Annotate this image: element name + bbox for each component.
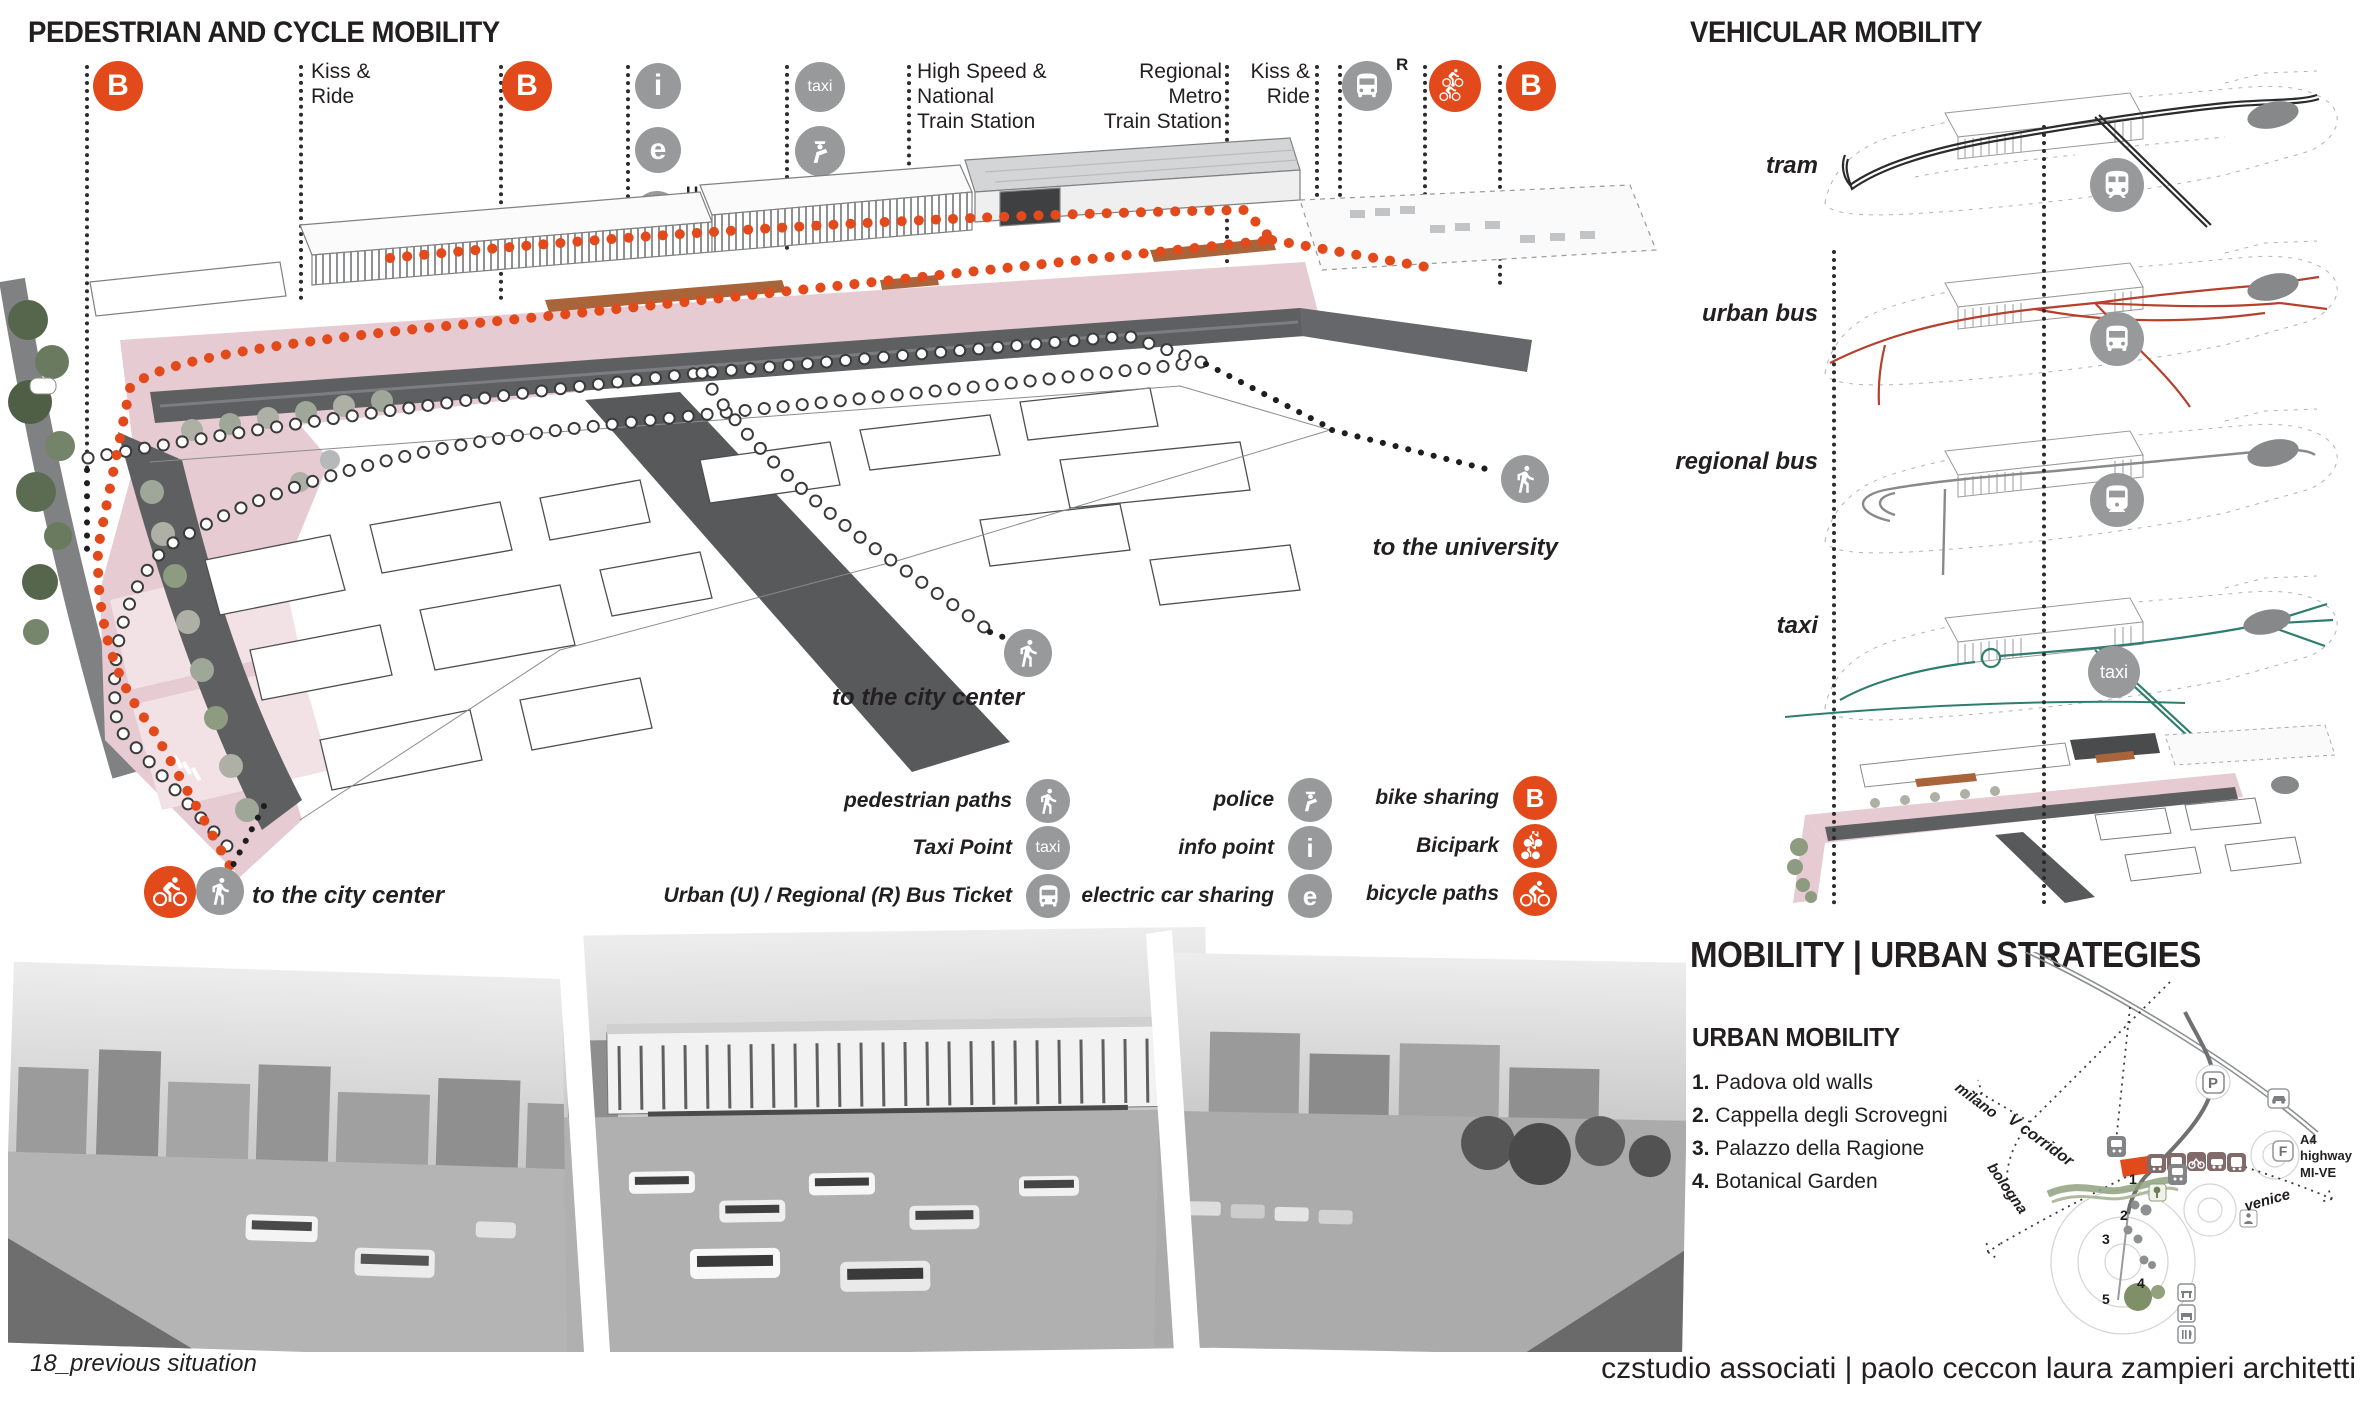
bicycle-icon bbox=[153, 875, 187, 909]
tram-icon bbox=[2090, 158, 2144, 212]
bike-sharing-station-icon: B bbox=[93, 61, 143, 111]
bike-sharing-station-icon: B bbox=[502, 61, 552, 111]
bicipark-icon bbox=[1513, 824, 1557, 868]
to-city-center-label: to the city center bbox=[252, 882, 444, 910]
urban-strategies-diagram: P F 1 2 3 4 5 bbox=[1930, 952, 2362, 1352]
bicipark-icon bbox=[1429, 60, 1481, 112]
train-icon bbox=[2168, 1164, 2187, 1185]
bicycle-icon bbox=[1513, 872, 1557, 916]
legend-row: electric car sharing e bbox=[1100, 874, 1332, 918]
page-title: PEDESTRIAN AND CYCLE MOBILITY bbox=[28, 16, 500, 50]
electric-icon: e bbox=[1288, 874, 1332, 918]
walk-icon bbox=[1013, 638, 1043, 668]
bus-icon bbox=[1352, 71, 1382, 101]
walk-icon bbox=[205, 876, 235, 906]
credit-line: czstudio associati | paolo ceccon laura … bbox=[1601, 1352, 2356, 1386]
svg-text:F: F bbox=[2279, 1143, 2288, 1159]
diagram-point: 2 bbox=[2120, 1207, 2128, 1223]
list-item: 3. Palazzo della Ragione bbox=[1692, 1132, 1948, 1165]
diagram-point: 5 bbox=[2102, 1291, 2110, 1307]
taxi-icon: taxi bbox=[1026, 826, 1070, 870]
previous-situation-photo bbox=[8, 916, 1686, 1352]
bus-icon bbox=[2090, 312, 2144, 366]
transport-icon-row bbox=[2147, 1152, 2246, 1173]
diagram-point: 4 bbox=[2137, 1275, 2145, 1291]
train-icon bbox=[2107, 1136, 2126, 1157]
list-item: 4. Botanical Garden bbox=[1692, 1165, 1948, 1198]
list-item: 1. Padova old walls bbox=[1692, 1066, 1948, 1099]
list-item: 2. Cappella degli Scrovegni bbox=[1692, 1099, 1948, 1132]
info-point-icon: i bbox=[635, 63, 681, 109]
bikeshare-icon: B bbox=[1513, 776, 1557, 820]
to-city-center-label: to the city center bbox=[832, 684, 1024, 712]
railway-icon bbox=[2090, 473, 2144, 527]
station-buildings bbox=[90, 138, 1656, 316]
bike-sharing-station-icon: B bbox=[1506, 61, 1556, 111]
section-dotted-line bbox=[1832, 250, 1836, 905]
legend-row: Taxi Point taxi bbox=[660, 826, 1070, 870]
legend-row: bicycle paths bbox=[1330, 872, 1557, 916]
legend-row: bike sharing B bbox=[1330, 776, 1557, 820]
walk-icon bbox=[1510, 464, 1540, 494]
car-icon bbox=[2268, 1089, 2289, 1108]
mini-masterplan bbox=[1765, 695, 2350, 920]
bus-icon bbox=[1026, 874, 1070, 918]
urban-mobility-list: 1. Padova old walls 2. Cappella degli Sc… bbox=[1692, 1066, 1948, 1198]
cyclist-icon bbox=[144, 866, 196, 918]
info-icon: i bbox=[1288, 826, 1332, 870]
taxi-icon: taxi bbox=[2088, 646, 2140, 698]
svg-text:P: P bbox=[2208, 1075, 2218, 1092]
river bbox=[2048, 1180, 2180, 1202]
hs-station-label: High Speed & National Train Station bbox=[917, 60, 1047, 134]
photo-panel-center bbox=[561, 927, 1211, 1352]
kiss-and-ride-label: Kiss & Ride bbox=[311, 60, 371, 110]
regional-station-label: Regional Metro Train Station bbox=[1104, 60, 1222, 134]
kiss-and-ride-label: Kiss & Ride bbox=[1250, 60, 1310, 110]
urban-mobility-subtitle: URBAN MOBILITY bbox=[1692, 1022, 1900, 1053]
legend-row: Bicipark bbox=[1330, 824, 1557, 868]
legend-row: pedestrian paths bbox=[660, 779, 1070, 823]
pedestrian-icon bbox=[196, 867, 244, 915]
taxi-point-icon: taxi bbox=[795, 62, 845, 112]
legend-row: info point i bbox=[1100, 826, 1332, 870]
a4-highway-line bbox=[2025, 952, 2318, 1144]
regional-superscript: R bbox=[1396, 55, 1408, 75]
photo-panel-right bbox=[1154, 953, 1686, 1352]
to-university-label: to the university bbox=[1373, 534, 1558, 562]
legend-row: police bbox=[1100, 778, 1332, 822]
pedestrian-icon bbox=[1501, 455, 1549, 503]
a4-highway-label: A4 highway MI-VE bbox=[2300, 1132, 2352, 1181]
regional-bus-ticket-icon bbox=[1342, 61, 1392, 111]
parking-icon: P bbox=[2196, 1065, 2230, 1099]
photo-caption: 18_previous situation bbox=[30, 1350, 257, 1378]
pedestrian-icon bbox=[1004, 629, 1052, 677]
diagram-point: 1 bbox=[2129, 1171, 2137, 1187]
police-icon bbox=[1288, 778, 1332, 822]
legend-row: Urban (U) / Regional (R) Bus Ticket bbox=[660, 874, 1070, 918]
section-dotted-line bbox=[2042, 125, 2046, 905]
diagram-point: 3 bbox=[2102, 1231, 2110, 1247]
fair-icon: F bbox=[2273, 1141, 2293, 1161]
vehicular-title: VEHICULAR MOBILITY bbox=[1690, 16, 1982, 50]
photo-panel-left bbox=[8, 962, 626, 1352]
walk-icon bbox=[1026, 779, 1070, 823]
